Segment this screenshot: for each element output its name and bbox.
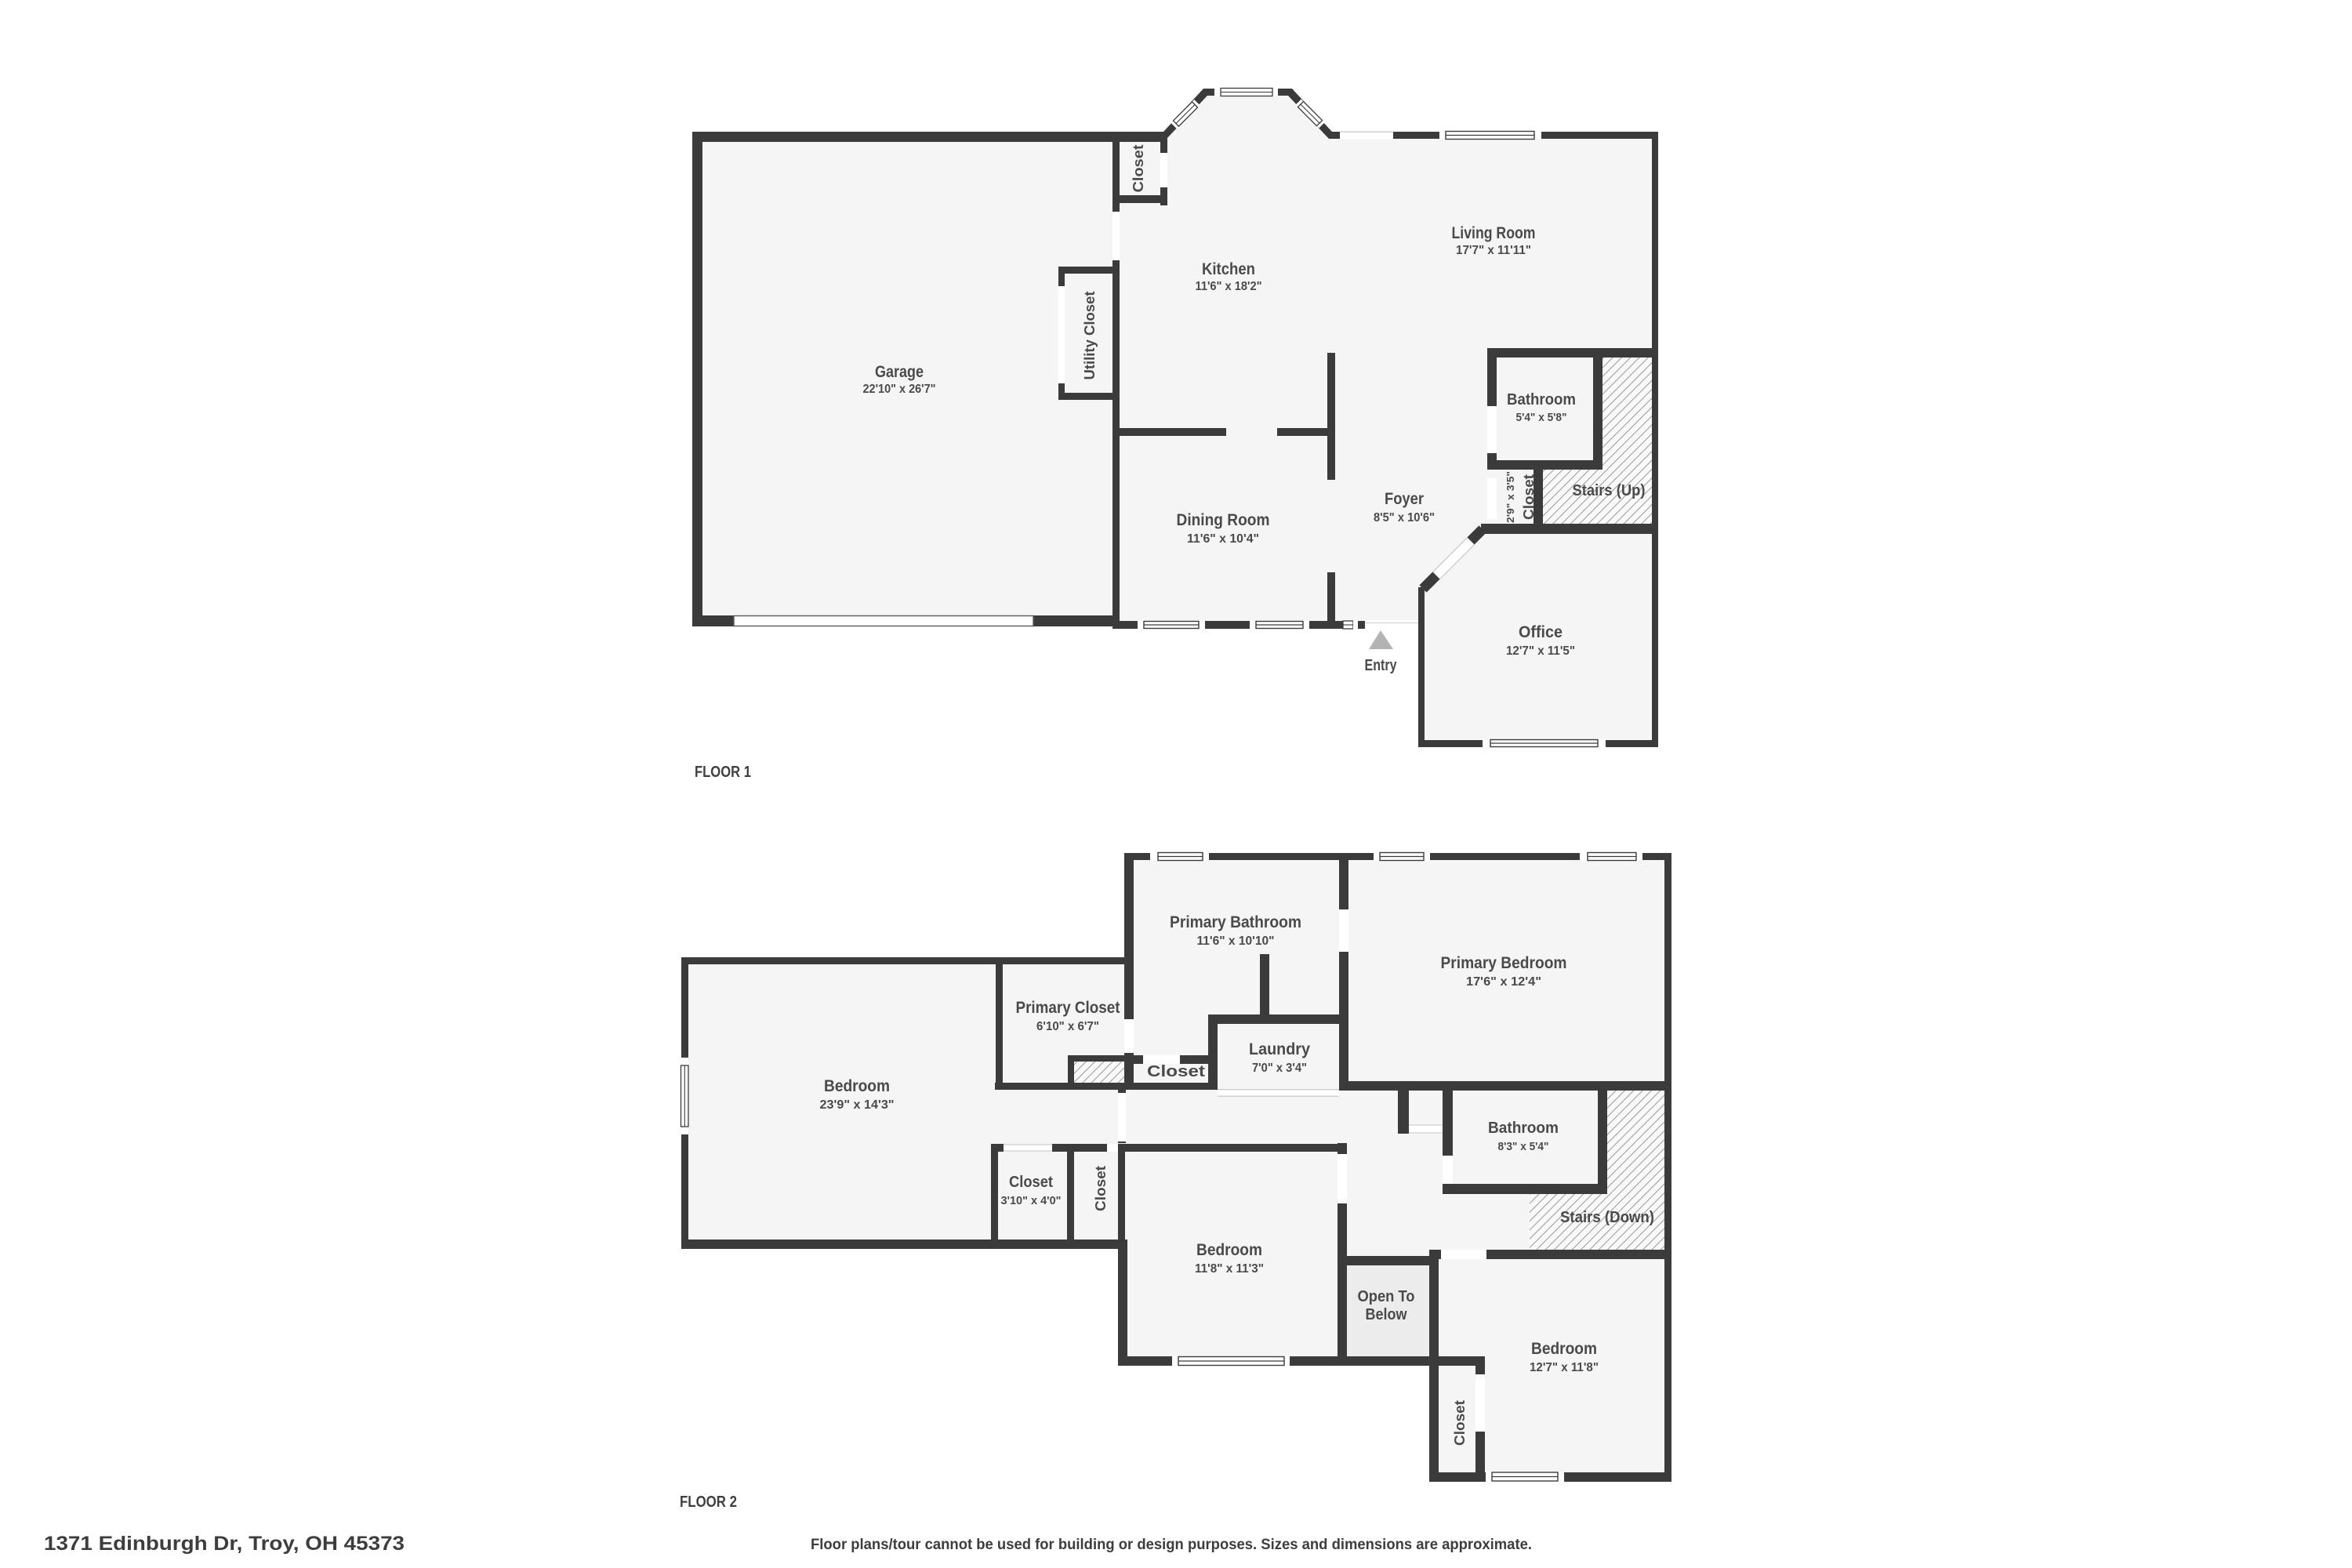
svg-text:Primary Bathroom: Primary Bathroom (1170, 913, 1301, 931)
svg-text:12'7" x 11'5": 12'7" x 11'5" (1506, 644, 1575, 658)
svg-text:FLOOR 1: FLOOR 1 (695, 764, 751, 781)
svg-text:22'10" x 26'7": 22'10" x 26'7" (863, 383, 936, 396)
svg-text:8'5" x 10'6": 8'5" x 10'6" (1374, 511, 1435, 524)
svg-text:Closet: Closet (1452, 1400, 1468, 1446)
svg-text:Closet: Closet (1147, 1063, 1205, 1080)
svg-text:Foyer: Foyer (1385, 490, 1424, 508)
svg-text:11'6" x 10'10": 11'6" x 10'10" (1197, 935, 1275, 948)
svg-text:Stairs (Down): Stairs (Down) (1560, 1209, 1654, 1226)
svg-text:Closet: Closet (1009, 1174, 1053, 1191)
svg-text:3'10" x 4'0": 3'10" x 4'0" (1001, 1194, 1062, 1207)
svg-text:Bedroom: Bedroom (1196, 1241, 1262, 1259)
svg-text:11'6" x 18'2": 11'6" x 18'2" (1196, 280, 1262, 293)
svg-text:Office: Office (1519, 623, 1563, 641)
svg-text:Below: Below (1366, 1306, 1407, 1323)
svg-text:Closet: Closet (1521, 474, 1537, 520)
svg-text:Bathroom: Bathroom (1488, 1120, 1559, 1137)
svg-text:Closet: Closet (1131, 144, 1146, 192)
svg-text:Primary Bedroom: Primary Bedroom (1441, 954, 1567, 972)
svg-text:Primary Closet: Primary Closet (1016, 999, 1120, 1017)
svg-text:Stairs (Up): Stairs (Up) (1573, 482, 1646, 499)
svg-text:11'8" x 11'3": 11'8" x 11'3" (1195, 1262, 1264, 1276)
svg-text:Entry: Entry (1365, 657, 1398, 674)
svg-text:Open To: Open To (1358, 1288, 1415, 1305)
svg-text:11'6" x 10'4": 11'6" x 10'4" (1187, 532, 1259, 546)
svg-text:8'3" x 5'4": 8'3" x 5'4" (1498, 1140, 1549, 1153)
svg-text:Utility Closet: Utility Closet (1082, 291, 1098, 379)
svg-text:Bathroom: Bathroom (1507, 391, 1576, 408)
svg-text:23'9" x 14'3": 23'9" x 14'3" (820, 1098, 895, 1112)
svg-text:Living Room: Living Room (1452, 224, 1536, 242)
svg-text:Garage: Garage (875, 363, 924, 381)
svg-text:Dining Room: Dining Room (1177, 511, 1270, 529)
svg-text:1371 Edinburgh Dr, Troy, OH 45: 1371 Edinburgh Dr, Troy, OH 45373 (44, 1533, 405, 1555)
svg-text:FLOOR 2: FLOOR 2 (680, 1494, 737, 1511)
svg-text:Kitchen: Kitchen (1202, 260, 1255, 278)
svg-text:7'0" x 3'4": 7'0" x 3'4" (1252, 1062, 1307, 1075)
svg-text:Bedroom: Bedroom (824, 1077, 890, 1095)
svg-text:Closet: Closet (1093, 1166, 1109, 1211)
svg-text:12'7" x 11'8": 12'7" x 11'8" (1530, 1361, 1599, 1374)
svg-text:17'6" x 12'4": 17'6" x 12'4" (1466, 975, 1541, 989)
svg-text:6'10" x 6'7": 6'10" x 6'7" (1036, 1020, 1099, 1033)
svg-text:17'7" x 11'11": 17'7" x 11'11" (1456, 244, 1531, 257)
svg-text:Laundry: Laundry (1249, 1040, 1310, 1058)
svg-text:Floor plans/tour cannot be use: Floor plans/tour cannot be used for buil… (811, 1537, 1532, 1553)
svg-text:2'9" x 3'5": 2'9" x 3'5" (1505, 471, 1516, 523)
svg-text:Bedroom: Bedroom (1531, 1340, 1597, 1358)
svg-text:5'4" x 5'8": 5'4" x 5'8" (1516, 411, 1567, 424)
